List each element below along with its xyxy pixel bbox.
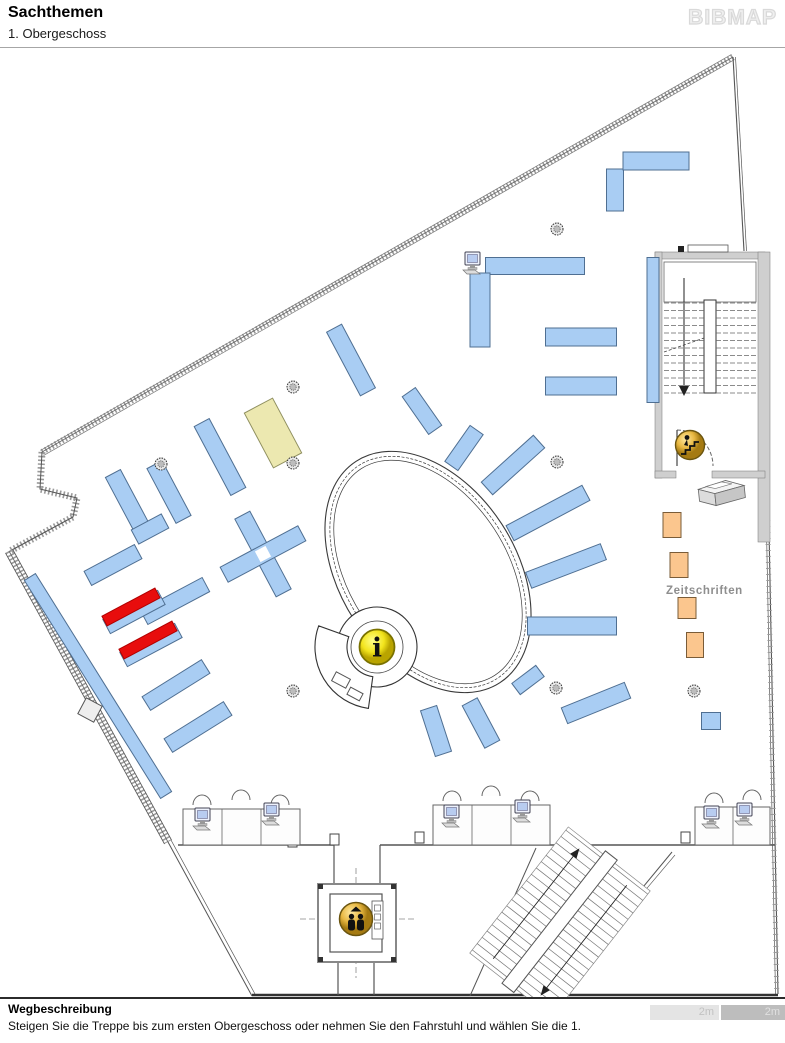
shelf	[647, 258, 659, 403]
shelf	[546, 328, 617, 346]
shelf-magazines	[663, 513, 681, 538]
info-icon: i	[360, 630, 395, 665]
column	[287, 381, 299, 393]
floorplan-map: Zeitschrifteni	[0, 49, 785, 997]
shelf	[546, 377, 617, 395]
column	[287, 685, 299, 697]
footer: Wegbeschreibung Steigen Sie die Treppe b…	[0, 997, 785, 1043]
shelf-magazines	[678, 598, 696, 619]
stairs-down-icon	[676, 431, 705, 460]
shelf-magazines	[687, 633, 704, 658]
bibmap-logo: BIBMAP	[688, 6, 777, 30]
page-title: Sachthemen	[8, 4, 103, 22]
column	[551, 223, 563, 235]
shelf	[702, 713, 721, 730]
zeitschriften-label: Zeitschriften	[666, 585, 743, 597]
column	[155, 458, 167, 470]
shelf	[528, 617, 617, 635]
column	[551, 456, 563, 468]
bibmap-page: Sachthemen 1. Obergeschoss BIBMAP Zeitsc…	[0, 0, 785, 1043]
shelf	[486, 258, 585, 275]
column	[287, 457, 299, 469]
directions-text: Steigen Sie die Treppe bis zum ersten Ob…	[8, 1019, 708, 1033]
column	[688, 685, 700, 697]
shelf	[607, 169, 624, 211]
scale-indicator-light: 2m	[650, 1005, 719, 1020]
shelf	[470, 273, 490, 347]
floor-subtitle: 1. Obergeschoss	[8, 26, 106, 41]
elevator	[300, 868, 414, 978]
column	[550, 682, 562, 694]
shelf	[623, 152, 689, 170]
svg-text:i: i	[372, 634, 382, 664]
elevator-icon	[340, 903, 373, 936]
header: Sachthemen 1. Obergeschoss BIBMAP	[0, 0, 785, 48]
scale-indicator-dark: 2m	[721, 1005, 785, 1020]
shelf-magazines	[670, 553, 688, 578]
directions-heading: Wegbeschreibung	[8, 1002, 112, 1016]
